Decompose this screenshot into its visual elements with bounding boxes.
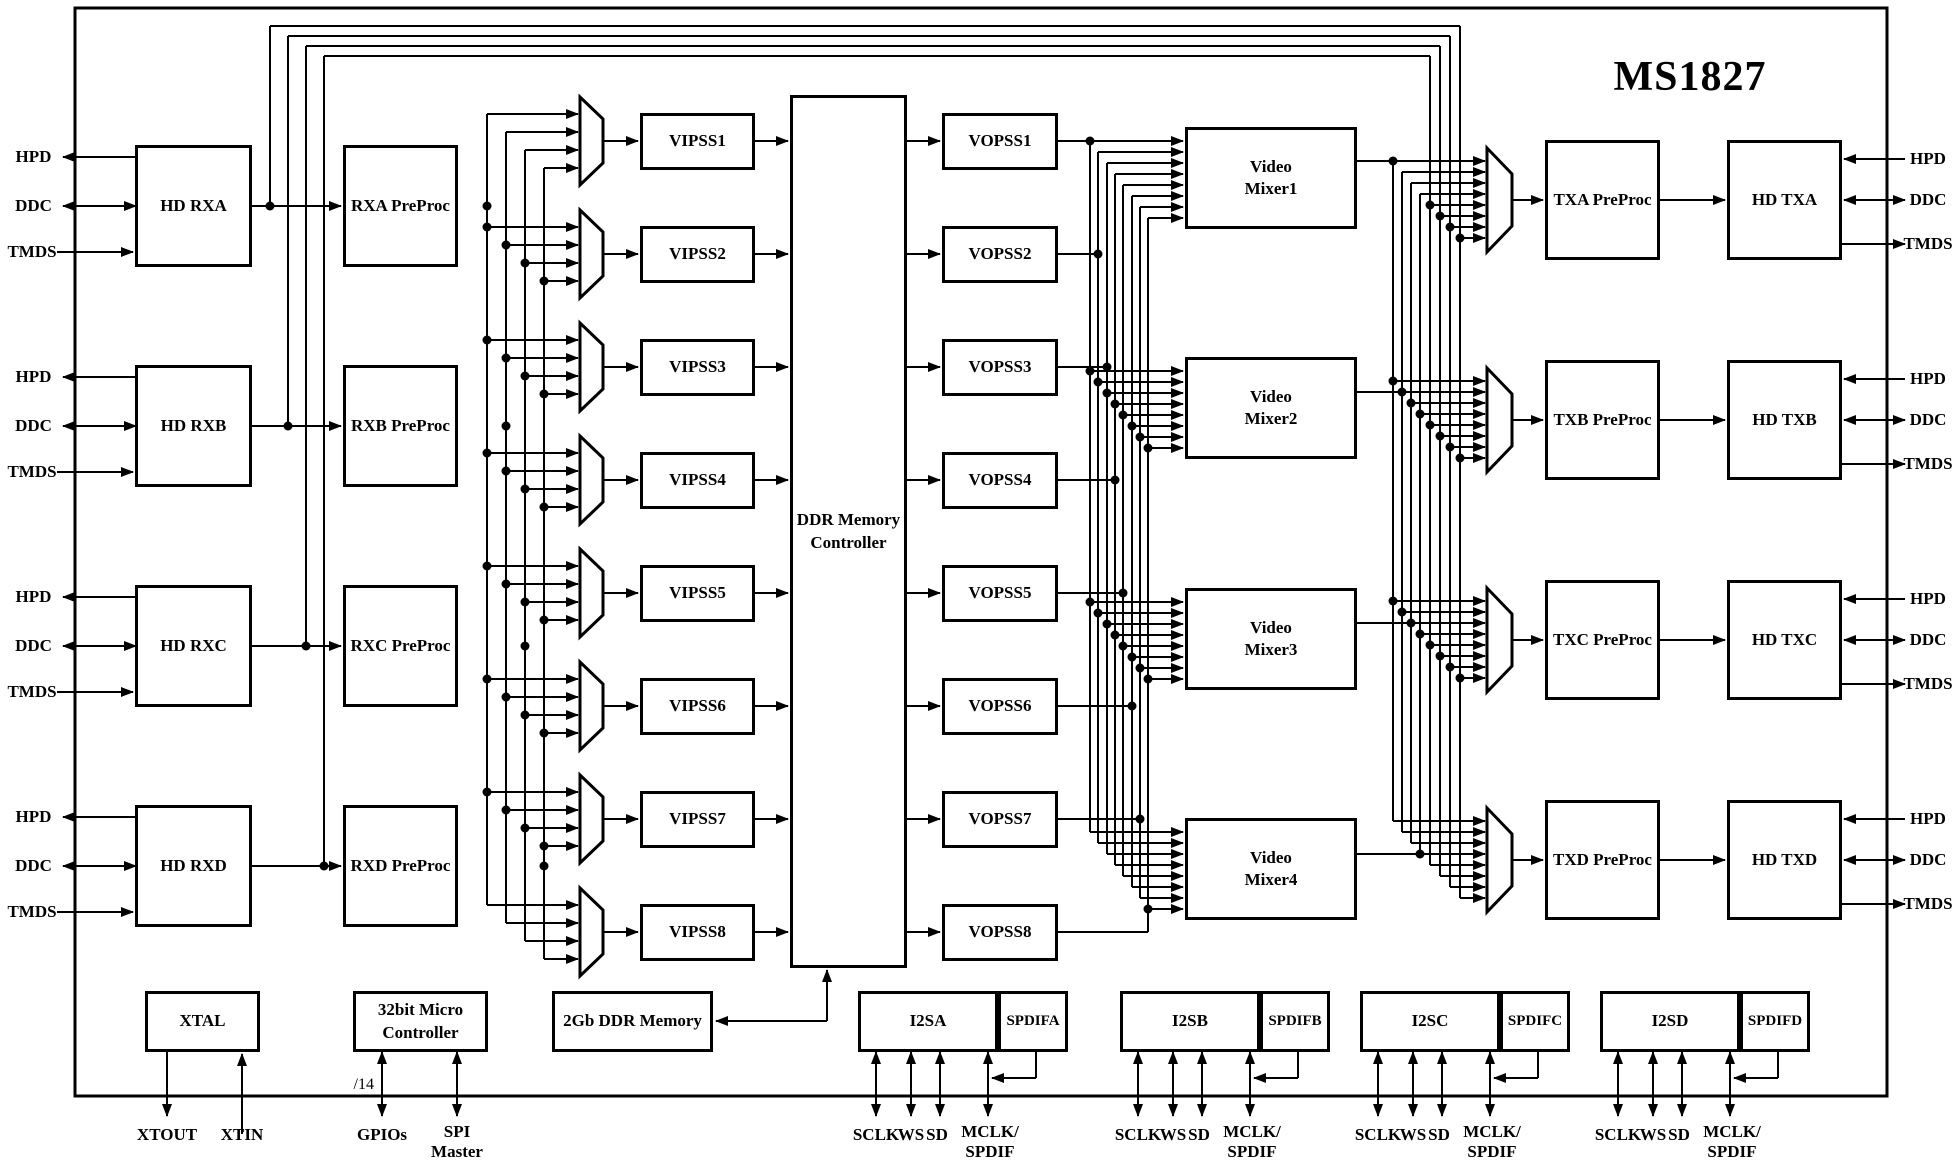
vipss6-block: VIPSS6 (640, 678, 755, 735)
port-label-ddc-c: DDC (6, 636, 61, 656)
vipss7-block: VIPSS7 (640, 791, 755, 848)
hd-rxb-block: HD RXB (135, 365, 252, 487)
chip-title: MS1827 (1588, 50, 1792, 104)
video-mixer2-block: Video Mixer2 (1185, 357, 1357, 459)
pin-label-mclk-a: MCLK/ SPDIF (954, 1120, 1026, 1163)
pin-label-spi-master: SPI Master (420, 1120, 494, 1163)
txb-preproc-block: TXB PreProc (1545, 360, 1660, 480)
vopss6-block: VOPSS6 (942, 678, 1058, 735)
hd-rxc-block: HD RXC (135, 585, 252, 707)
port-label-hpd-txc: HPD (1900, 589, 1956, 609)
rxd-preproc-block: RXD PreProc (343, 805, 458, 927)
vipss2-block: VIPSS2 (640, 226, 755, 283)
bus-width-label: /14 (328, 1075, 374, 1095)
pin-label-sd-a: SD (924, 1124, 950, 1146)
vopss3-block: VOPSS3 (942, 339, 1058, 396)
port-label-hpd-d: HPD (6, 807, 61, 827)
hd-txc-block: HD TXC (1727, 580, 1842, 700)
ddr-memory-block: 2Gb DDR Memory (552, 991, 713, 1052)
hd-rxd-block: HD RXD (135, 805, 252, 927)
port-label-tmds-c: TMDS (2, 682, 62, 702)
pin-label-mclk-b: MCLK/ SPDIF (1216, 1120, 1288, 1163)
block-diagram: MS1827 HPD DDC TMDS HPD DDC TMDS HPD DDC… (0, 0, 1960, 1163)
port-label-ddc-txd: DDC (1900, 850, 1956, 870)
i2sc-block: I2SC (1360, 991, 1500, 1052)
port-label-hpd-txa: HPD (1900, 149, 1956, 169)
spdifc-block: SPDIFC (1500, 991, 1570, 1052)
port-label-hpd-c: HPD (6, 587, 61, 607)
pin-label-mclk-c: MCLK/ SPDIF (1456, 1120, 1528, 1163)
video-mixer4-block: Video Mixer4 (1185, 818, 1357, 920)
port-label-tmds-txa: TMDS (1898, 234, 1958, 254)
hd-txa-block: HD TXA (1727, 140, 1842, 260)
txa-preproc-block: TXA PreProc (1545, 140, 1660, 260)
hd-rxa-block: HD RXA (135, 145, 252, 267)
video-mixer1-block: Video Mixer1 (1185, 127, 1357, 229)
port-label-ddc-b: DDC (6, 416, 61, 436)
port-label-hpd-b: HPD (6, 367, 61, 387)
port-label-ddc-a: DDC (6, 196, 61, 216)
port-label-tmds-txc: TMDS (1898, 674, 1958, 694)
vopss1-block: VOPSS1 (942, 113, 1058, 170)
spdifb-block: SPDIFB (1260, 991, 1330, 1052)
i2sd-block: I2SD (1600, 991, 1740, 1052)
port-label-ddc-txc: DDC (1900, 630, 1956, 650)
txc-preproc-block: TXC PreProc (1545, 580, 1660, 700)
pin-label-ws-c: WS (1398, 1124, 1428, 1146)
hd-txb-block: HD TXB (1727, 360, 1842, 480)
port-label-ddc-txb: DDC (1900, 410, 1956, 430)
port-label-hpd-a: HPD (6, 147, 61, 167)
port-label-tmds-a: TMDS (2, 242, 62, 262)
pin-label-ws-a: WS (896, 1124, 926, 1146)
xtal-block: XTAL (145, 991, 260, 1052)
hd-txd-block: HD TXD (1727, 800, 1842, 920)
pin-label-sd-d: SD (1666, 1124, 1692, 1146)
port-label-tmds-d: TMDS (2, 902, 62, 922)
vipss4-block: VIPSS4 (640, 452, 755, 509)
pin-label-sd-b: SD (1186, 1124, 1212, 1146)
i2sa-block: I2SA (858, 991, 998, 1052)
vopss5-block: VOPSS5 (942, 565, 1058, 622)
port-label-ddc-txa: DDC (1900, 190, 1956, 210)
vopss8-block: VOPSS8 (942, 904, 1058, 961)
pin-label-ws-d: WS (1638, 1124, 1668, 1146)
vipss8-block: VIPSS8 (640, 904, 755, 961)
pin-label-ws-b: WS (1158, 1124, 1188, 1146)
video-mixer3-block: Video Mixer3 (1185, 588, 1357, 690)
port-label-tmds-b: TMDS (2, 462, 62, 482)
pin-label-xtout: XTOUT (130, 1124, 204, 1146)
rxa-preproc-block: RXA PreProc (343, 145, 458, 267)
spdifa-block: SPDIFA (998, 991, 1068, 1052)
vopss4-block: VOPSS4 (942, 452, 1058, 509)
pin-label-gpios: GPIOs (347, 1124, 417, 1146)
pin-label-mclk-d: MCLK/ SPDIF (1696, 1120, 1768, 1163)
port-label-hpd-txd: HPD (1900, 809, 1956, 829)
spdifd-block: SPDIFD (1740, 991, 1810, 1052)
rxc-preproc-block: RXC PreProc (343, 585, 458, 707)
vipss5-block: VIPSS5 (640, 565, 755, 622)
rxb-preproc-block: RXB PreProc (343, 365, 458, 487)
ddr-memory-controller-block: DDR Memory Controller (790, 95, 907, 968)
port-label-ddc-d: DDC (6, 856, 61, 876)
pin-label-sd-c: SD (1426, 1124, 1452, 1146)
port-label-hpd-txb: HPD (1900, 369, 1956, 389)
vipss1-block: VIPSS1 (640, 113, 755, 170)
vopss2-block: VOPSS2 (942, 226, 1058, 283)
mcu-block: 32bit Micro Controller (353, 991, 488, 1052)
i2sb-block: I2SB (1120, 991, 1260, 1052)
port-label-tmds-txb: TMDS (1898, 454, 1958, 474)
vipss3-block: VIPSS3 (640, 339, 755, 396)
port-label-tmds-txd: TMDS (1898, 894, 1958, 914)
txd-preproc-block: TXD PreProc (1545, 800, 1660, 920)
pin-label-xtin: XTIN (210, 1124, 274, 1146)
vopss7-block: VOPSS7 (942, 791, 1058, 848)
